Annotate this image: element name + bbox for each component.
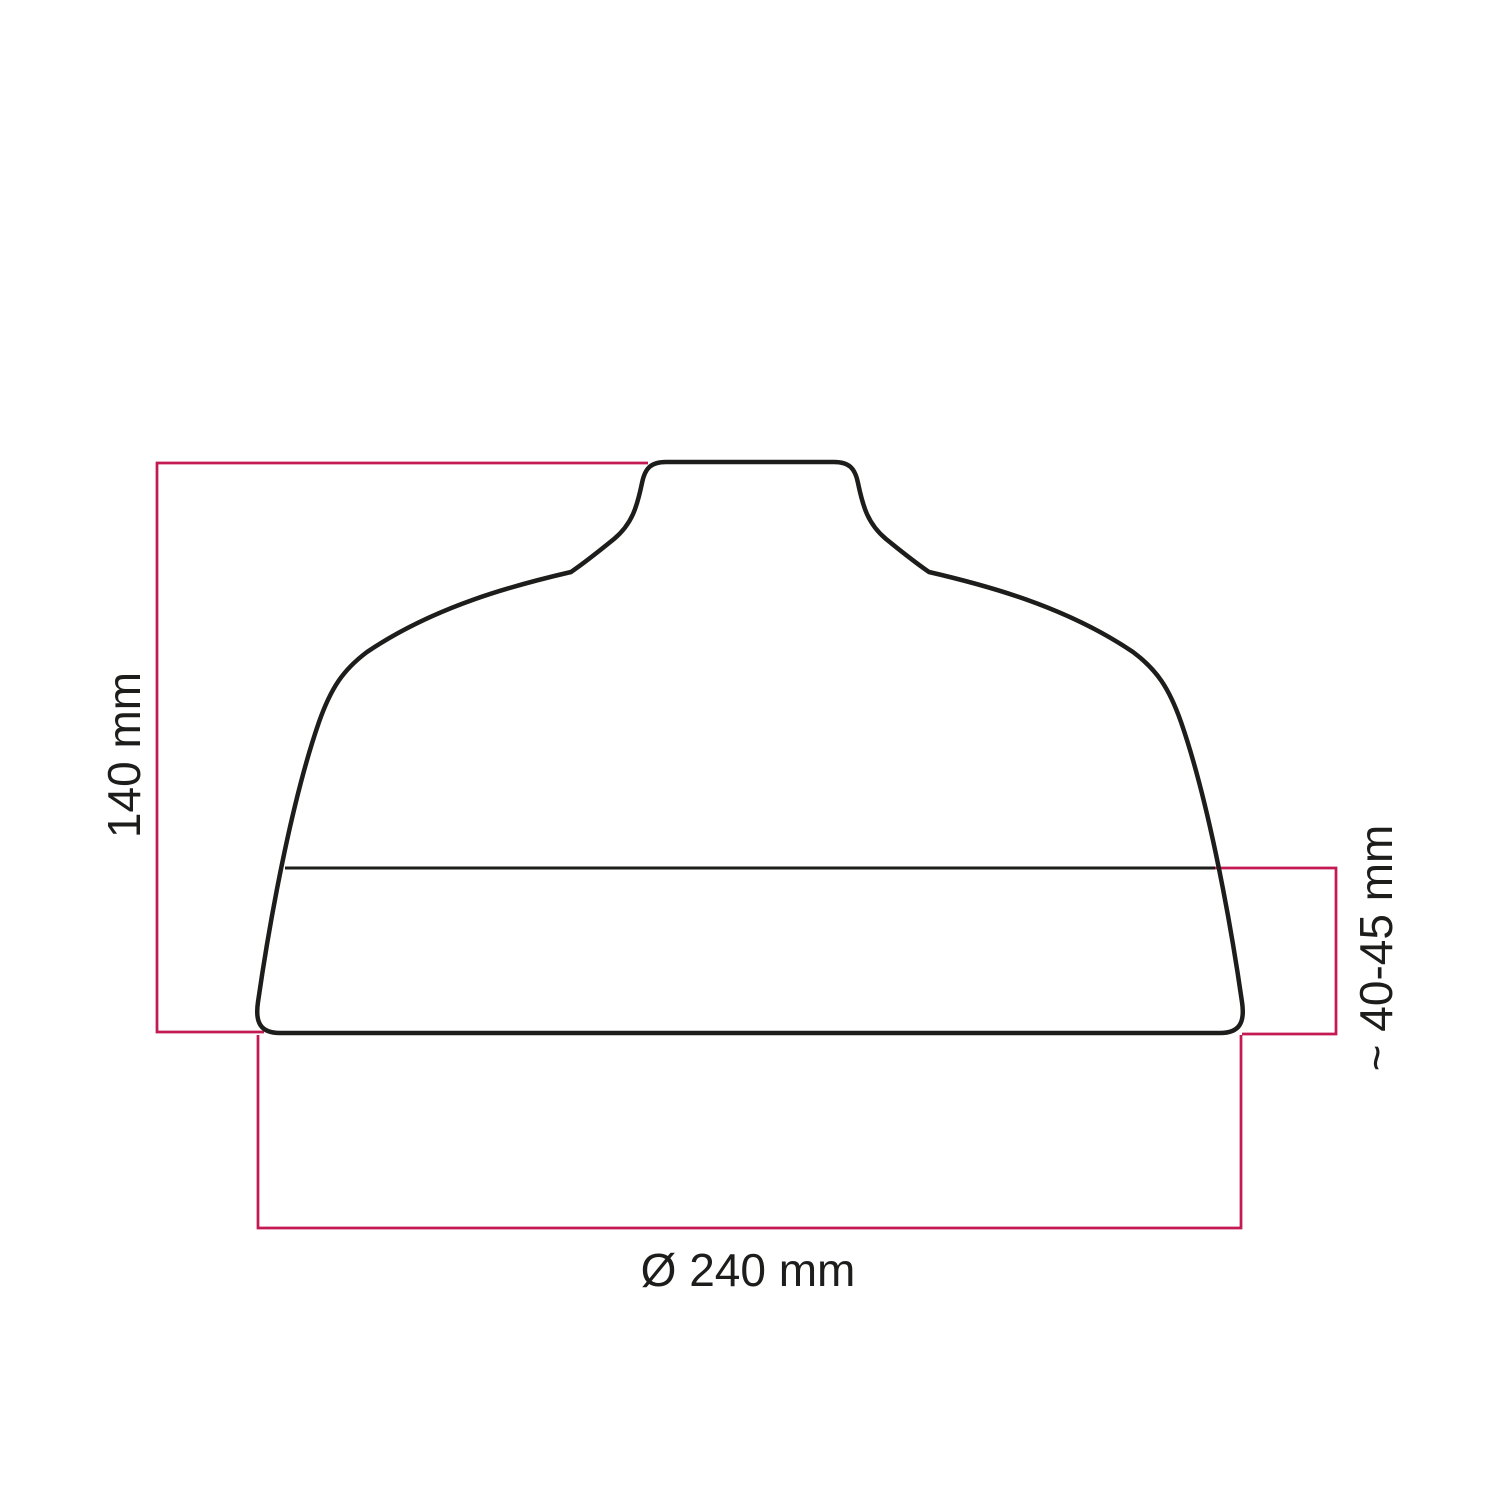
diameter-dimension-bracket [258, 1035, 1241, 1228]
diameter-dimension-line [258, 1035, 1241, 1228]
lampshade-outline [257, 462, 1243, 1033]
height-dimension-bracket [157, 463, 648, 1032]
band-height-dimension-label: ~ 40-45 mm [1350, 825, 1402, 1072]
diameter-dimension-label: Ø 240 mm [641, 1244, 856, 1296]
height-dimension-label: 140 mm [98, 672, 150, 838]
band-height-dimension-line [1211, 868, 1336, 1034]
band-height-dimension-bracket [1211, 868, 1336, 1034]
height-dimension-line [157, 463, 648, 1032]
lampshade-dimension-diagram: 140 mm ~ 40-45 mm Ø 240 mm [0, 0, 1500, 1500]
dimension-drawing-canvas: 140 mm ~ 40-45 mm Ø 240 mm [0, 0, 1500, 1500]
